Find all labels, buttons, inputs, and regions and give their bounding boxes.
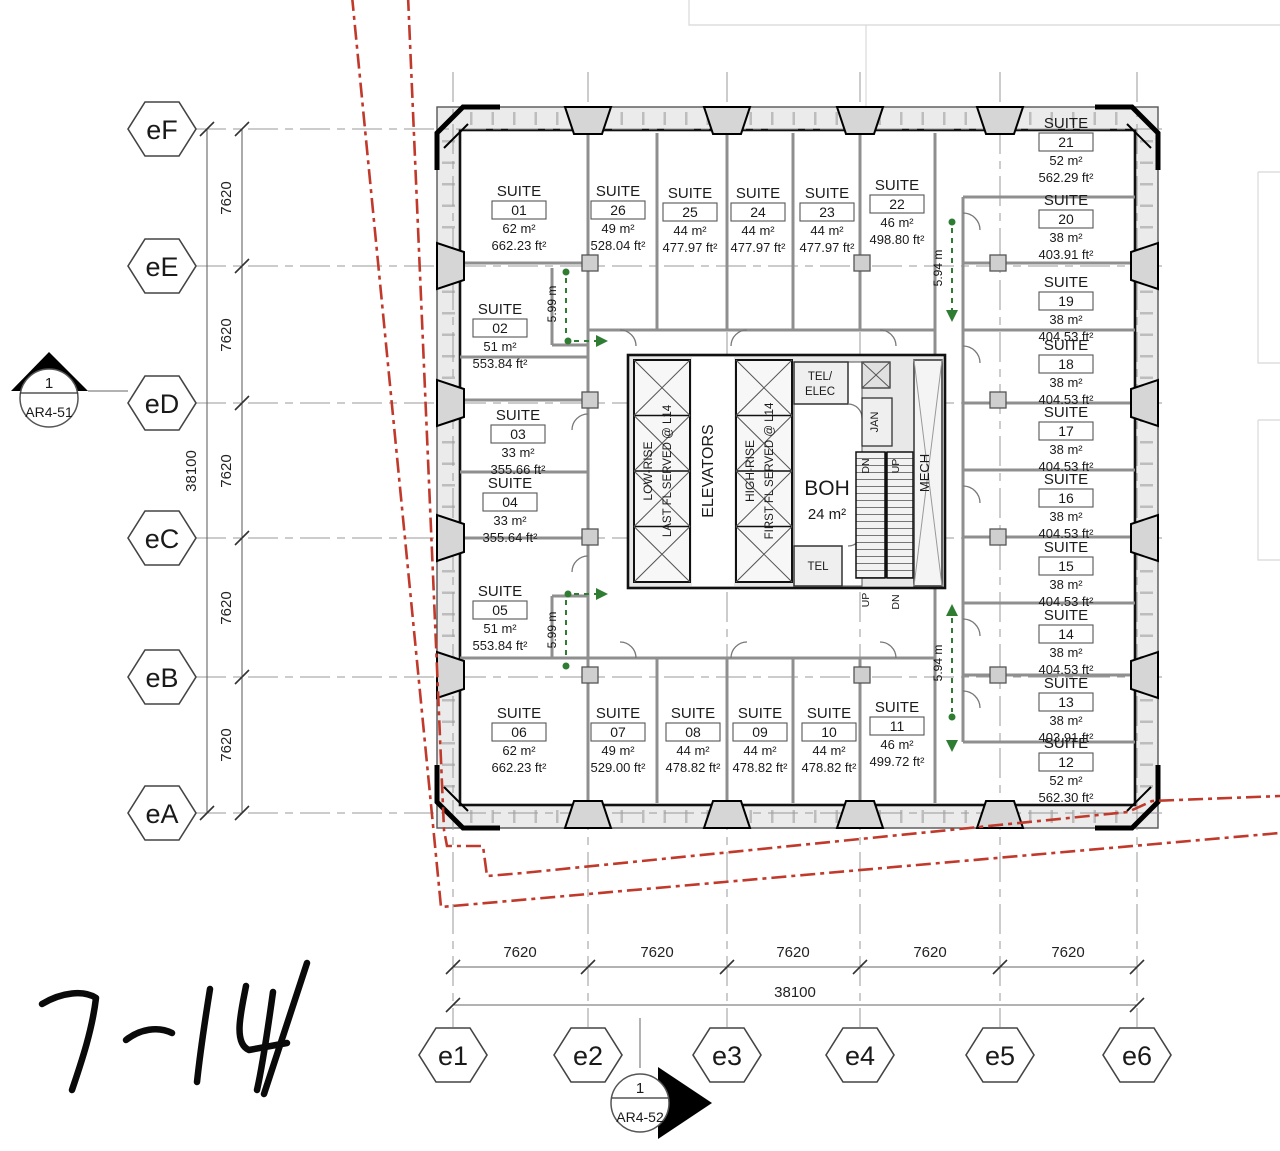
svg-text:SUITE: SUITE [807, 705, 851, 722]
grid-label-e5: e5 [985, 1041, 1015, 1071]
svg-text:11: 11 [890, 718, 905, 734]
svg-text:478.82 ft²: 478.82 ft² [666, 760, 722, 775]
section-marker-ar4-52: 1 AR4-52 [611, 1018, 712, 1139]
suite-05: SUITE0551 m²553.84 ft² [473, 583, 529, 653]
svg-text:38 m²: 38 m² [1049, 645, 1083, 660]
svg-text:SUITE: SUITE [875, 177, 919, 194]
grid-bubbles-cols [419, 1028, 1171, 1082]
suite-23: SUITE2344 m²477.97 ft² [800, 185, 856, 255]
dim-bottom-1: 7620 [503, 944, 536, 961]
svg-text:06: 06 [511, 724, 527, 740]
svg-text:24: 24 [750, 204, 766, 220]
suite-16: SUITE1638 m²404.53 ft² [1039, 471, 1095, 541]
tel-elec-label-2: ELEC [805, 386, 835, 398]
suite-08: SUITE0844 m²478.82 ft² [666, 705, 722, 775]
suite-04: SUITE0433 m²355.64 ft² [483, 475, 539, 545]
svg-text:38 m²: 38 m² [1049, 442, 1083, 457]
svg-text:SUITE: SUITE [596, 705, 640, 722]
section2-sheet: AR4-52 [616, 1109, 664, 1125]
svg-text:498.80 ft²: 498.80 ft² [870, 232, 926, 247]
suite-14: SUITE1438 m²404.53 ft² [1039, 607, 1095, 677]
svg-text:08: 08 [685, 724, 701, 740]
svg-text:01: 01 [511, 202, 527, 218]
svg-text:52 m²: 52 m² [1049, 153, 1083, 168]
svg-text:662.23 ft²: 662.23 ft² [492, 760, 548, 775]
green-dim-top-left: 5.99 m [545, 286, 559, 323]
svg-text:SUITE: SUITE [596, 183, 640, 200]
svg-text:SUITE: SUITE [736, 185, 780, 202]
dimensions-bottom: 7620 7620 7620 7620 7620 38100 [446, 944, 1144, 1012]
suite-12: SUITE1252 m²562.30 ft² [1039, 735, 1095, 805]
handwritten-annotation: 7-14 [42, 963, 307, 1094]
svg-text:33 m²: 33 m² [493, 513, 527, 528]
svg-text:46 m²: 46 m² [880, 737, 914, 752]
suite-26: SUITE2649 m²528.04 ft² [591, 183, 647, 253]
svg-text:02: 02 [492, 320, 508, 336]
svg-text:SUITE: SUITE [1044, 675, 1088, 692]
svg-text:05: 05 [492, 602, 508, 618]
svg-text:62 m²: 62 m² [502, 221, 536, 236]
svg-text:529.00 ft²: 529.00 ft² [591, 760, 647, 775]
svg-text:SUITE: SUITE [478, 583, 522, 600]
svg-text:SUITE: SUITE [1044, 337, 1088, 354]
svg-text:SUITE: SUITE [1044, 539, 1088, 556]
svg-text:478.82 ft²: 478.82 ft² [733, 760, 789, 775]
tel-elec-label-1: TEL/ [808, 371, 833, 383]
svg-text:SUITE: SUITE [497, 183, 541, 200]
svg-text:49 m²: 49 m² [601, 743, 635, 758]
svg-text:46 m²: 46 m² [880, 215, 914, 230]
suite-06: SUITE0662 m²662.23 ft² [492, 705, 548, 775]
svg-text:528.04 ft²: 528.04 ft² [591, 238, 647, 253]
svg-text:09: 09 [752, 724, 768, 740]
suite-15: SUITE1538 m²404.53 ft² [1039, 539, 1095, 609]
dim-left-4: 7620 [218, 591, 235, 624]
svg-text:477.97 ft²: 477.97 ft² [663, 240, 719, 255]
dim-bottom-4: 7620 [913, 944, 946, 961]
svg-text:562.29 ft²: 562.29 ft² [1039, 170, 1095, 185]
dim-bottom-3: 7620 [776, 944, 809, 961]
svg-text:38 m²: 38 m² [1049, 509, 1083, 524]
green-dim-bottom-right: 5.94 m [931, 645, 945, 682]
suite-03: SUITE0333 m²355.66 ft² [491, 407, 547, 477]
svg-text:18: 18 [1058, 356, 1074, 372]
svg-text:SUITE: SUITE [496, 407, 540, 424]
grid-label-e2: e2 [573, 1041, 603, 1071]
svg-text:355.64 ft²: 355.64 ft² [483, 530, 539, 545]
dim-left-2: 7620 [218, 318, 235, 351]
svg-text:14: 14 [1058, 626, 1074, 642]
svg-text:13: 13 [1058, 694, 1074, 710]
svg-text:19: 19 [1058, 293, 1074, 309]
suite-07: SUITE0749 m²529.00 ft² [591, 705, 647, 775]
svg-text:62 m²: 62 m² [502, 743, 536, 758]
svg-text:499.72 ft²: 499.72 ft² [870, 754, 926, 769]
suite-18: SUITE1838 m²404.53 ft² [1039, 337, 1095, 407]
jan-label: JAN [869, 412, 881, 433]
suite-09: SUITE0944 m²478.82 ft² [733, 705, 789, 775]
dim-left-1: 7620 [218, 181, 235, 214]
mech-label: MECH [917, 454, 932, 492]
svg-text:52 m²: 52 m² [1049, 773, 1083, 788]
grid-label-e1: e1 [438, 1041, 468, 1071]
high-rise-label: HIGH-RISE [743, 440, 757, 502]
svg-text:44 m²: 44 m² [676, 743, 710, 758]
svg-text:26: 26 [610, 202, 626, 218]
suite-22: SUITE2246 m²498.80 ft² [870, 177, 926, 247]
grid-label-e6: e6 [1122, 1041, 1152, 1071]
svg-text:44 m²: 44 m² [743, 743, 777, 758]
stair-dn-label-top: DN [860, 458, 872, 473]
dim-bottom-5: 7620 [1051, 944, 1084, 961]
suite-10: SUITE1044 m²478.82 ft² [802, 705, 858, 775]
dim-bottom-2: 7620 [640, 944, 673, 961]
svg-text:SUITE: SUITE [1044, 274, 1088, 291]
svg-text:21: 21 [1058, 134, 1074, 150]
grid-label-e3: e3 [712, 1041, 742, 1071]
svg-text:20: 20 [1058, 211, 1074, 227]
svg-text:38 m²: 38 m² [1049, 230, 1083, 245]
elevator-bank-low-rise: LOW-RISE LAST FL SERVED @ L14 [634, 360, 690, 582]
svg-text:SUITE: SUITE [1044, 735, 1088, 752]
svg-text:22: 22 [889, 196, 905, 212]
svg-text:33 m²: 33 m² [501, 445, 535, 460]
suite-21: SUITE2152 m²562.29 ft² [1039, 115, 1095, 185]
svg-text:SUITE: SUITE [805, 185, 849, 202]
dim-left-total: 38100 [183, 450, 200, 492]
elevators-label: ELEVATORS [700, 424, 717, 517]
grid-label-eA: eA [145, 799, 178, 829]
suite-01: SUITE0162 m²662.23 ft² [492, 183, 548, 253]
grid-label-eE: eE [145, 252, 178, 282]
svg-text:12: 12 [1058, 754, 1074, 770]
suite-25: SUITE2544 m²477.97 ft² [663, 185, 719, 255]
stair-up-label-bottom: UP [860, 593, 872, 608]
svg-text:51 m²: 51 m² [483, 339, 517, 354]
section1-sheet: AR4-51 [25, 404, 73, 420]
core: LOW-RISE LAST FL SERVED @ L14 ELEVATORS … [628, 355, 945, 610]
grid-label-eB: eB [145, 663, 178, 693]
svg-text:553.84 ft²: 553.84 ft² [473, 356, 529, 371]
svg-text:49 m²: 49 m² [601, 221, 635, 236]
svg-text:403.91 ft²: 403.91 ft² [1039, 247, 1095, 262]
suite-24: SUITE2444 m²477.97 ft² [731, 185, 787, 255]
dim-left-3: 7620 [218, 454, 235, 487]
dim-left-5: 7620 [218, 728, 235, 761]
svg-text:03: 03 [510, 426, 526, 442]
boh-area-label: 24 m² [808, 506, 846, 523]
svg-text:38 m²: 38 m² [1049, 375, 1083, 390]
green-dim-bottom-left: 5.99 m [545, 612, 559, 649]
svg-text:553.84 ft²: 553.84 ft² [473, 638, 529, 653]
floor-plan-drawing: LOW-RISE LAST FL SERVED @ L14 ELEVATORS … [0, 0, 1280, 1151]
svg-text:SUITE: SUITE [497, 705, 541, 722]
suite-11: SUITE1146 m²499.72 ft² [870, 699, 926, 769]
svg-text:SUITE: SUITE [1044, 404, 1088, 421]
svg-text:662.23 ft²: 662.23 ft² [492, 238, 548, 253]
svg-text:04: 04 [502, 494, 518, 510]
section1-number: 1 [45, 375, 53, 392]
svg-text:38 m²: 38 m² [1049, 713, 1083, 728]
elevator-bank-high-rise: HIGH-RISE FIRST FL SERVED @ L14 [736, 360, 792, 582]
svg-text:477.97 ft²: 477.97 ft² [731, 240, 787, 255]
low-rise-label: LOW-RISE [641, 441, 655, 500]
svg-text:25: 25 [682, 204, 698, 220]
svg-text:SUITE: SUITE [875, 699, 919, 716]
svg-text:51 m²: 51 m² [483, 621, 517, 636]
svg-text:10: 10 [821, 724, 837, 740]
svg-text:478.82 ft²: 478.82 ft² [802, 760, 858, 775]
high-rise-served-label: FIRST FL SERVED @ L14 [764, 402, 776, 539]
svg-text:562.30 ft²: 562.30 ft² [1039, 790, 1095, 805]
svg-text:SUITE: SUITE [738, 705, 782, 722]
svg-text:SUITE: SUITE [478, 301, 522, 318]
svg-text:SUITE: SUITE [671, 705, 715, 722]
svg-text:SUITE: SUITE [488, 475, 532, 492]
svg-text:44 m²: 44 m² [812, 743, 846, 758]
svg-text:16: 16 [1058, 490, 1074, 506]
svg-text:15: 15 [1058, 558, 1074, 574]
dimensions-left: 7620 7620 7620 7620 7620 38100 [183, 122, 249, 820]
svg-text:07: 07 [610, 724, 626, 740]
dim-bottom-total: 38100 [774, 984, 816, 1001]
svg-text:17: 17 [1058, 423, 1074, 439]
svg-text:SUITE: SUITE [1044, 607, 1088, 624]
svg-text:SUITE: SUITE [668, 185, 712, 202]
svg-text:SUITE: SUITE [1044, 471, 1088, 488]
grid-label-e4: e4 [845, 1041, 875, 1071]
svg-text:477.97 ft²: 477.97 ft² [800, 240, 856, 255]
stair-dn-label-bottom: DN [890, 594, 902, 609]
tel-label: TEL [807, 561, 829, 573]
svg-text:38 m²: 38 m² [1049, 312, 1083, 327]
stair-up-label-top: UP [890, 459, 902, 474]
suite-19: SUITE1938 m²404.53 ft² [1039, 274, 1095, 344]
suite-20: SUITE2038 m²403.91 ft² [1039, 192, 1095, 262]
svg-text:38 m²: 38 m² [1049, 577, 1083, 592]
boh-label: BOH [804, 477, 850, 500]
green-dim-top-right: 5.94 m [931, 250, 945, 287]
svg-text:23: 23 [819, 204, 835, 220]
suite-02: SUITE0251 m²553.84 ft² [473, 301, 529, 371]
svg-text:44 m²: 44 m² [741, 223, 775, 238]
low-rise-served-label: LAST FL SERVED @ L14 [662, 404, 674, 537]
section-marker-ar4-51: 1 AR4-51 [11, 352, 128, 427]
svg-text:44 m²: 44 m² [810, 223, 844, 238]
svg-text:SUITE: SUITE [1044, 115, 1088, 132]
section2-number: 1 [636, 1080, 644, 1097]
svg-text:SUITE: SUITE [1044, 192, 1088, 209]
suite-17: SUITE1738 m²404.53 ft² [1039, 404, 1095, 474]
grid-label-eD: eD [145, 389, 180, 419]
svg-text:44 m²: 44 m² [673, 223, 707, 238]
floor-plan-page: LOW-RISE LAST FL SERVED @ L14 ELEVATORS … [0, 0, 1280, 1151]
grid-label-eC: eC [145, 524, 180, 554]
grid-label-eF: eF [146, 115, 178, 145]
